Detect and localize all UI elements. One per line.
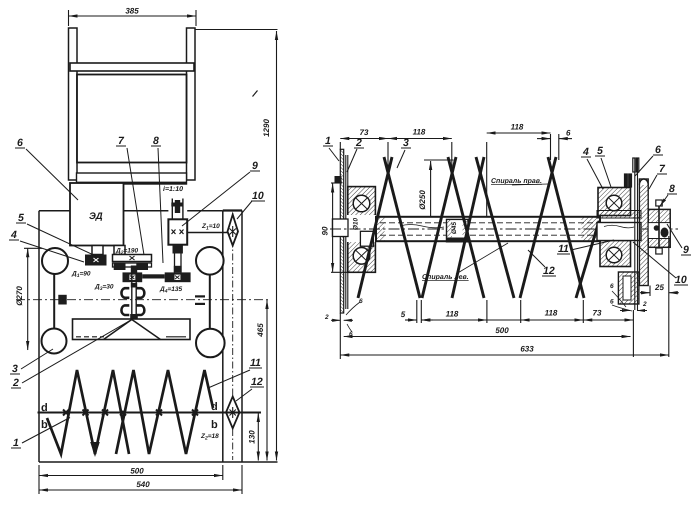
svg-text:2: 2 — [642, 301, 647, 308]
svg-text:5: 5 — [597, 145, 603, 157]
svg-text:1: 1 — [13, 437, 19, 449]
svg-text:4: 4 — [10, 229, 17, 241]
svg-text:6: 6 — [655, 144, 661, 156]
svg-text:118: 118 — [545, 309, 558, 318]
svg-text:9: 9 — [252, 160, 258, 172]
svg-text:12: 12 — [251, 376, 263, 388]
svg-text:ЭД: ЭД — [89, 211, 103, 222]
svg-text:d: d — [41, 402, 48, 414]
svg-text:5: 5 — [18, 212, 24, 224]
svg-text:10: 10 — [252, 190, 264, 202]
svg-text:5: 5 — [401, 310, 406, 319]
svg-text:465: 465 — [256, 323, 265, 338]
svg-text:i=1:10: i=1:10 — [163, 185, 183, 193]
svg-text:540: 540 — [136, 480, 150, 489]
svg-text:1290: 1290 — [262, 119, 271, 137]
svg-text:9: 9 — [683, 244, 689, 256]
svg-text:118: 118 — [413, 128, 426, 137]
svg-text:7: 7 — [659, 163, 666, 175]
svg-text:73: 73 — [360, 128, 369, 137]
svg-text:500: 500 — [495, 326, 509, 335]
svg-text:6: 6 — [359, 298, 363, 305]
svg-text:8: 8 — [669, 183, 675, 195]
svg-text:Д1=90: Д1=90 — [71, 271, 91, 279]
svg-text:6: 6 — [610, 283, 614, 290]
svg-text:Z2=18: Z2=18 — [200, 433, 219, 441]
svg-text:500: 500 — [130, 467, 144, 476]
svg-text:Д3=30: Д3=30 — [94, 284, 114, 292]
svg-text:d: d — [211, 401, 218, 413]
svg-text:Д4=135: Д4=135 — [159, 286, 183, 294]
svg-text:3: 3 — [12, 363, 18, 375]
svg-text:11: 11 — [558, 243, 569, 255]
svg-text:6: 6 — [17, 137, 23, 149]
svg-text:Z1=10: Z1=10 — [201, 223, 220, 231]
svg-text:118: 118 — [446, 310, 459, 319]
svg-text:Ø10: Ø10 — [353, 217, 360, 230]
svg-text:633: 633 — [520, 345, 534, 354]
svg-text:Ø45: Ø45 — [451, 221, 458, 234]
svg-text:2: 2 — [355, 137, 362, 149]
svg-text:73: 73 — [593, 309, 602, 318]
svg-text:3: 3 — [403, 137, 409, 149]
svg-text:b: b — [211, 419, 218, 431]
svg-text:6: 6 — [610, 299, 614, 306]
svg-text:Ø270: Ø270 — [15, 286, 24, 306]
svg-text:1: 1 — [325, 135, 331, 147]
svg-text:8: 8 — [153, 135, 159, 147]
svg-text:Спираль прав.: Спираль прав. — [491, 178, 542, 185]
svg-text:Ø250: Ø250 — [418, 190, 427, 210]
svg-text:118: 118 — [511, 123, 524, 132]
svg-text:6: 6 — [566, 129, 571, 138]
svg-text:25: 25 — [654, 283, 664, 292]
svg-text:11: 11 — [250, 357, 261, 369]
svg-text:Спираль лев.: Спираль лев. — [422, 274, 469, 281]
svg-text:130: 130 — [248, 430, 257, 444]
svg-text:10: 10 — [675, 274, 687, 286]
svg-text:4: 4 — [582, 146, 589, 158]
svg-text:2: 2 — [12, 377, 19, 389]
svg-text:2: 2 — [324, 314, 329, 321]
svg-text:385: 385 — [125, 7, 139, 16]
svg-text:90: 90 — [321, 226, 330, 235]
